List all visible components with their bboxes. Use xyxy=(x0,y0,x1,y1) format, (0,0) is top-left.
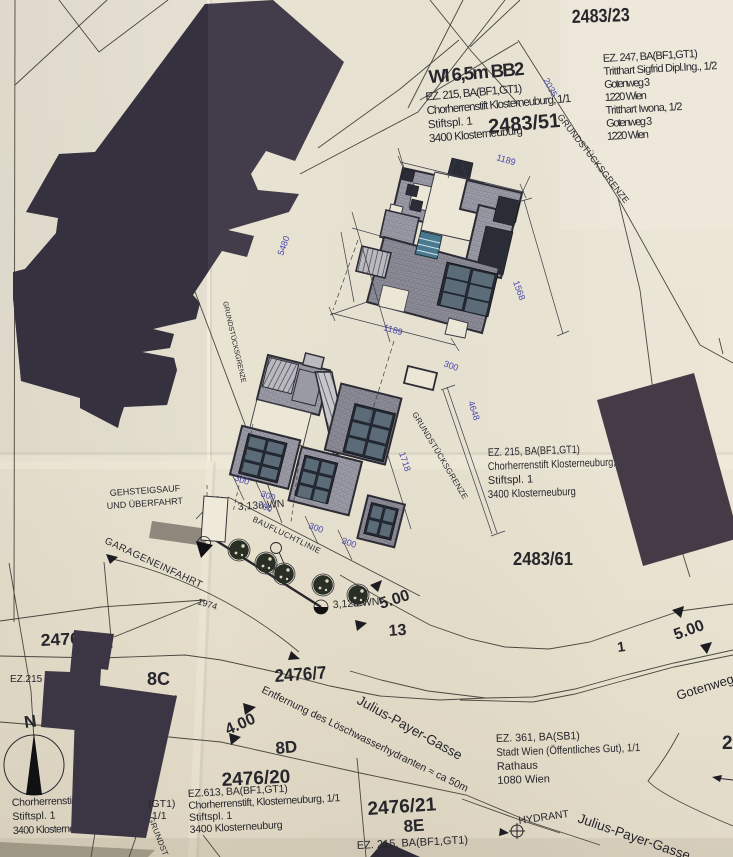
svg-text:Rathaus: Rathaus xyxy=(497,760,539,773)
svg-text:Stiftspl. 1: Stiftspl. 1 xyxy=(12,809,56,823)
svg-text:Gotenweg 3: Gotenweg 3 xyxy=(606,116,653,130)
svg-text:Stiftspl. 1: Stiftspl. 1 xyxy=(488,473,534,487)
svg-text:13: 13 xyxy=(388,622,407,640)
svg-text:2483/61: 2483/61 xyxy=(513,549,573,569)
svg-text:Chorherrenstift,: Chorherrenstift, xyxy=(12,795,80,809)
svg-text:2: 2 xyxy=(722,733,733,754)
svg-text:1/1: 1/1 xyxy=(152,810,167,822)
svg-text:1080 Wien: 1080 Wien xyxy=(497,773,550,787)
svg-text:1220 Wien: 1220 Wien xyxy=(607,129,650,143)
svg-text:N: N xyxy=(23,711,38,732)
svg-text:8D: 8D xyxy=(275,737,298,758)
svg-text:1220 Wien: 1220 Wien xyxy=(605,90,648,104)
svg-text:8E: 8E xyxy=(403,816,425,836)
svg-text:Gotenweg 3: Gotenweg 3 xyxy=(604,77,651,91)
svg-text:2476/7: 2476/7 xyxy=(274,662,327,686)
svg-text:8C: 8C xyxy=(147,669,170,689)
svg-text:(GT1): (GT1) xyxy=(148,798,175,810)
svg-text:EZ.215: EZ.215 xyxy=(10,674,43,685)
svg-text:2483/23: 2483/23 xyxy=(571,5,630,28)
